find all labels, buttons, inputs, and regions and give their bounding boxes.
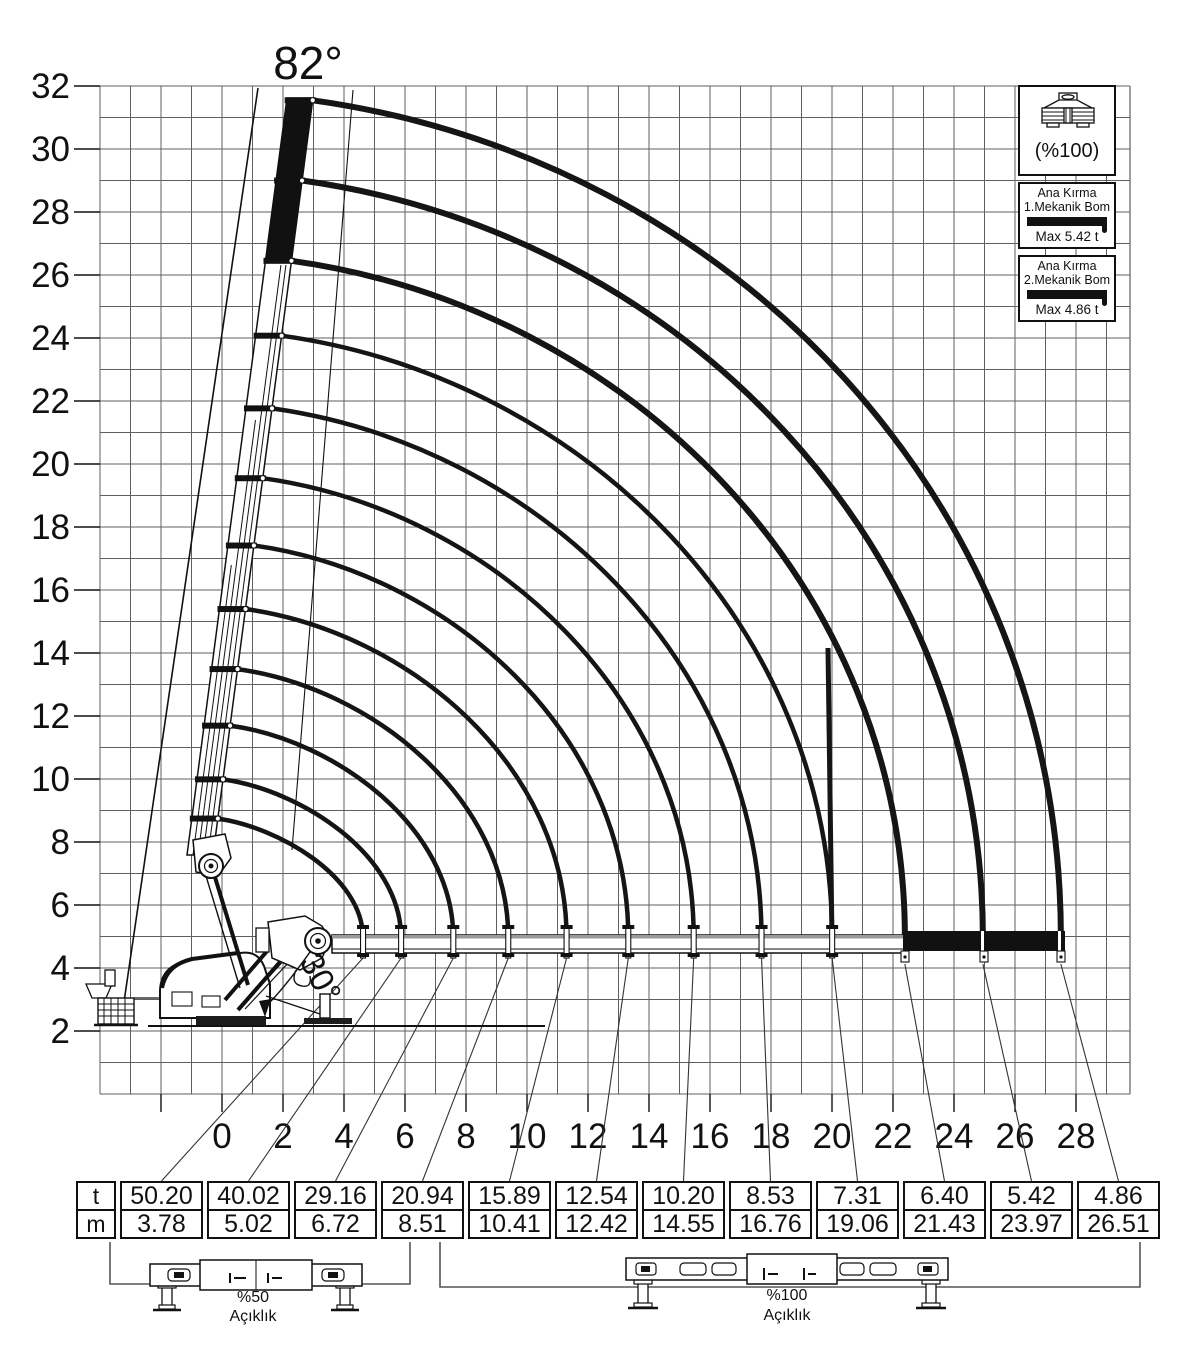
crane-base-front-icon [1036, 91, 1098, 133]
x-tick-label: 26 [996, 1117, 1035, 1156]
x-tick-label: 14 [630, 1117, 669, 1156]
crane-load-chart-page: { "page": { "title_angle_label": "82°", … [0, 0, 1200, 1362]
h-boom-collar-cap-top [688, 925, 700, 929]
outrigger-50-label: Açıklık [229, 1308, 277, 1325]
reach-metres: 23.97 [992, 1211, 1071, 1237]
h-boom-collar-cap-top [447, 925, 459, 929]
x-tick-label: 22 [874, 1117, 913, 1156]
raised-boom-section-line [198, 420, 255, 855]
front-outrigger-pad [304, 1018, 352, 1024]
crane-base-plate [196, 1016, 266, 1025]
raised-boom-tip-pin [251, 543, 256, 548]
reach-metres: 5.02 [209, 1211, 288, 1237]
x-tick-label: 0 [212, 1117, 231, 1156]
reach-metres: 19.06 [818, 1211, 897, 1237]
legend-max-capacity: Max 4.86 t [1020, 302, 1114, 317]
h-boom-collar-cap-top [502, 925, 514, 929]
leader-line-12.42 [597, 958, 629, 1181]
legend-item-line1: Ana Kırma [1020, 186, 1114, 200]
reach-metres: 10.41 [470, 1211, 549, 1237]
reach-metres: 16.76 [731, 1211, 810, 1237]
raised-boom-section-line [203, 265, 281, 855]
reach-metres: 3.78 [122, 1211, 201, 1237]
h-boom-collar-cap-bottom [561, 953, 573, 957]
capacity-tonnes: 10.20 [644, 1183, 723, 1211]
raised-boom-tip-pin [289, 258, 294, 263]
legend-outrigger-config: (%100) [1018, 85, 1116, 176]
y-tick-label: 4 [51, 949, 70, 988]
legend-max-capacity: Max 5.42 t [1020, 229, 1114, 244]
outrigger-diagram-100: %100 Açıklık [612, 1248, 962, 1362]
telescopic-boom-horizontal [332, 925, 1065, 962]
boom-base-hub [209, 864, 214, 869]
table-column-21.43: 6.4021.43 [903, 1181, 986, 1239]
winch-hub [315, 938, 321, 944]
table-column-14.55: 10.2014.55 [642, 1181, 725, 1239]
y-tick-label: 8 [51, 823, 70, 862]
boom-bar-icon [1027, 217, 1107, 226]
x-tick-label: 2 [273, 1117, 292, 1156]
table-column-12.42: 12.5412.42 [555, 1181, 638, 1239]
x-tick-label: 4 [334, 1117, 353, 1156]
raised-boom-tip-pin [215, 816, 220, 821]
y-tick-label: 28 [31, 193, 70, 232]
table-column-16.76: 8.5316.76 [729, 1181, 812, 1239]
load-curve-21.43 [292, 261, 905, 938]
legend-outrigger-label: (%100) [1020, 140, 1114, 163]
capacity-tonnes: 29.16 [296, 1183, 375, 1211]
h-boom-end-pin [1059, 955, 1062, 958]
reach-metres: 6.72 [296, 1211, 375, 1237]
legend-item-line2: 2.Mekanik Bom [1020, 273, 1114, 287]
legend-mech-boom-2: Ana Kırma 2.Mekanik Bom Max 4.86 t [1018, 255, 1116, 322]
h-boom-collar-cap-bottom [622, 953, 634, 957]
capacity-tonnes: 5.42 [992, 1183, 1071, 1211]
table-column-3.78: 50.203.78 [120, 1181, 203, 1239]
table-column-10.41: 15.8910.41 [468, 1181, 551, 1239]
load-curve-10.41 [246, 609, 567, 938]
y-tick-label: 6 [51, 886, 70, 925]
raised-boom-tip-pin [299, 178, 304, 183]
knuckle-plate [256, 928, 269, 952]
reach-metres: 14.55 [644, 1211, 723, 1237]
outrigger-100-percent: %100 [767, 1287, 808, 1304]
h-boom-collar-cap-bottom [395, 953, 407, 957]
table-column-23.97: 5.4223.97 [990, 1181, 1073, 1239]
x-tick-label: 10 [508, 1117, 547, 1156]
y-tick-label: 2 [51, 1012, 70, 1051]
raised-boom-tip-pin [279, 333, 284, 338]
h-boom-end-pin [982, 955, 985, 958]
table-column-8.51: 20.948.51 [381, 1181, 464, 1239]
x-tick-label: 20 [813, 1117, 852, 1156]
reach-metres: 8.51 [383, 1211, 462, 1237]
h-boom-collar-cap-bottom [826, 953, 838, 957]
legend-item-line2: 1.Mekanik Bom [1020, 200, 1114, 214]
unit-numerator: t [78, 1183, 114, 1211]
capacity-table: t m 50.203.7840.025.0229.166.7220.948.51… [76, 1181, 1160, 1239]
h-boom-collar-cap-bottom [502, 953, 514, 957]
h-boom-collar-cap-bottom [756, 953, 768, 957]
crane-housing [160, 953, 270, 1018]
h-boom-collar-cap-bottom [447, 953, 459, 957]
y-tick-label: 26 [31, 256, 70, 295]
raised-boom-tip-pin [269, 406, 274, 411]
h-boom-collar-cap-top [357, 925, 369, 929]
x-tick-label: 8 [456, 1117, 475, 1156]
y-tick-label: 16 [31, 571, 70, 610]
stabilizer-post [105, 970, 115, 986]
x-tick-label: 6 [395, 1117, 414, 1156]
reach-metres: 21.43 [905, 1211, 984, 1237]
h-boom-collar-cap-top [826, 925, 838, 929]
x-tick-label: 12 [569, 1117, 608, 1156]
capacity-tonnes: 40.02 [209, 1183, 288, 1211]
outrigger-100-label: Açıklık [763, 1307, 811, 1324]
load-curve-26.51 [313, 100, 1061, 938]
capacity-tonnes: 50.20 [122, 1183, 201, 1211]
raised-boom-tip-pin [227, 723, 232, 728]
h-boom-end-pin [903, 955, 906, 958]
table-unit-cell: t m [76, 1181, 116, 1239]
y-tick-label: 32 [31, 67, 70, 106]
h-boom-top-band [332, 935, 905, 939]
capacity-tonnes: 4.86 [1079, 1183, 1158, 1211]
table-column-19.06: 7.3119.06 [816, 1181, 899, 1239]
raised-boom-tip-pin [235, 666, 240, 671]
h-boom-collar-cap-top [622, 925, 634, 929]
y-tick-label: 10 [31, 760, 70, 799]
capacity-tonnes: 12.54 [557, 1183, 636, 1211]
table-column-26.51: 4.8626.51 [1077, 1181, 1160, 1239]
y-tick-label: 22 [31, 382, 70, 421]
y-tick-label: 14 [31, 634, 70, 673]
legend-mech-boom-1: Ana Kırma 1.Mekanik Bom Max 5.42 t [1018, 182, 1116, 249]
reach-metres: 12.42 [557, 1211, 636, 1237]
boom-max-angle-label: 82° [273, 37, 343, 89]
x-axis-labels: 0246810121416182022242628 [212, 1117, 1095, 1156]
table-column-6.72: 29.166.72 [294, 1181, 377, 1239]
load-curve-8.51 [238, 669, 509, 938]
table-column-5.02: 40.025.02 [207, 1181, 290, 1239]
load-curve-23.97 [302, 181, 983, 939]
h-boom-collar-cap-top [395, 925, 407, 929]
h-boom-black-joint [981, 931, 984, 951]
raised-boom-tip-pin [310, 98, 315, 103]
x-tick-label: 24 [935, 1117, 974, 1156]
y-tick-label: 20 [31, 445, 70, 484]
unit-denominator: m [78, 1211, 114, 1237]
raised-boom-tip-pin [220, 777, 225, 782]
h-boom-collar-cap-bottom [688, 953, 700, 957]
stabilizer-stack [98, 998, 134, 1024]
boom-bar-icon [1027, 290, 1107, 299]
legend: (%100) Ana Kırma 1.Mekanik Bom Max 5.42 … [1018, 85, 1116, 322]
y-tick-label: 18 [31, 508, 70, 547]
raised-boom-tip-pin [243, 606, 248, 611]
h-boom-collar-cap-bottom [357, 953, 369, 957]
x-tick-label: 16 [691, 1117, 730, 1156]
y-tick-label: 30 [31, 130, 70, 169]
capacity-tonnes: 8.53 [731, 1183, 810, 1211]
legend-item-line1: Ana Kırma [1020, 259, 1114, 273]
reach-metres: 26.51 [1079, 1211, 1158, 1237]
capacity-tonnes: 7.31 [818, 1183, 897, 1211]
capacity-tonnes: 15.89 [470, 1183, 549, 1211]
h-boom-collar-cap-top [756, 925, 768, 929]
y-tick-label: 24 [31, 319, 70, 358]
capacity-tonnes: 6.40 [905, 1183, 984, 1211]
h-boom-black-joint [1058, 931, 1061, 951]
capacity-tonnes: 20.94 [383, 1183, 462, 1211]
h-boom-collar-cap-top [561, 925, 573, 929]
x-tick-label: 28 [1057, 1117, 1096, 1156]
load-curve-19.06 [282, 336, 833, 938]
y-axis-labels: 3230282624222018161412108642 [31, 67, 70, 1051]
y-tick-label: 12 [31, 697, 70, 736]
outrigger-50-percent: %50 [237, 1289, 269, 1306]
outrigger-diagram-50: %50 Açıklık [138, 1248, 376, 1362]
x-tick-label: 18 [752, 1117, 791, 1156]
raised-boom-tip-pin [260, 476, 265, 481]
